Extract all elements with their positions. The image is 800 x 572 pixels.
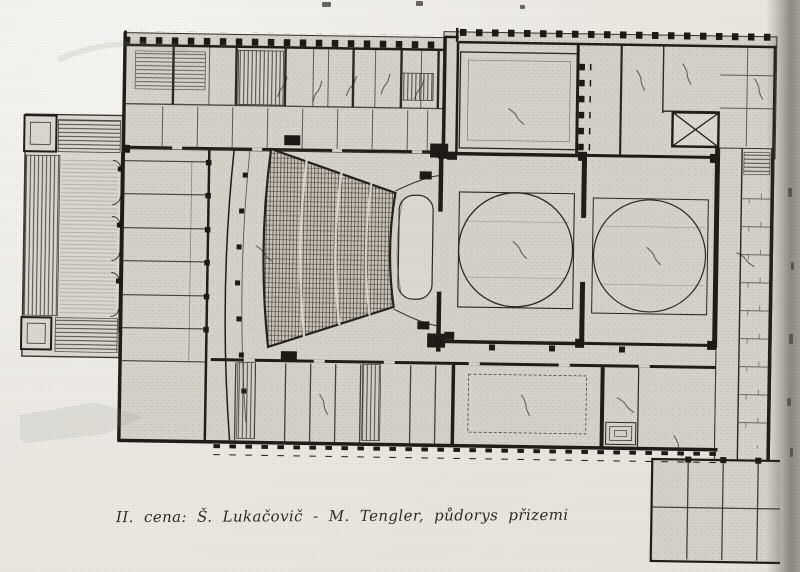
theatre-floor-plan-drawing (20, 25, 780, 570)
adjacent-page-text-fragment (787, 398, 791, 406)
adjacent-page-text-fragment (788, 188, 792, 197)
plan-rotated-group (20, 25, 780, 563)
ink-speck (322, 2, 331, 7)
elevator-shaft (672, 112, 719, 147)
scanned-book-page: II. cena: Š. Lukačovič - M. Tengler, půd… (0, 0, 800, 572)
adjacent-page-text-fragment (790, 448, 793, 457)
adjacent-page-text-fragment (791, 262, 794, 270)
ink-speck (520, 5, 525, 9)
adjacent-page-text-fragment (789, 334, 793, 344)
figure-caption: II. cena: Š. Lukačovič - M. Tengler, půd… (116, 506, 569, 526)
ink-speck (416, 1, 423, 6)
